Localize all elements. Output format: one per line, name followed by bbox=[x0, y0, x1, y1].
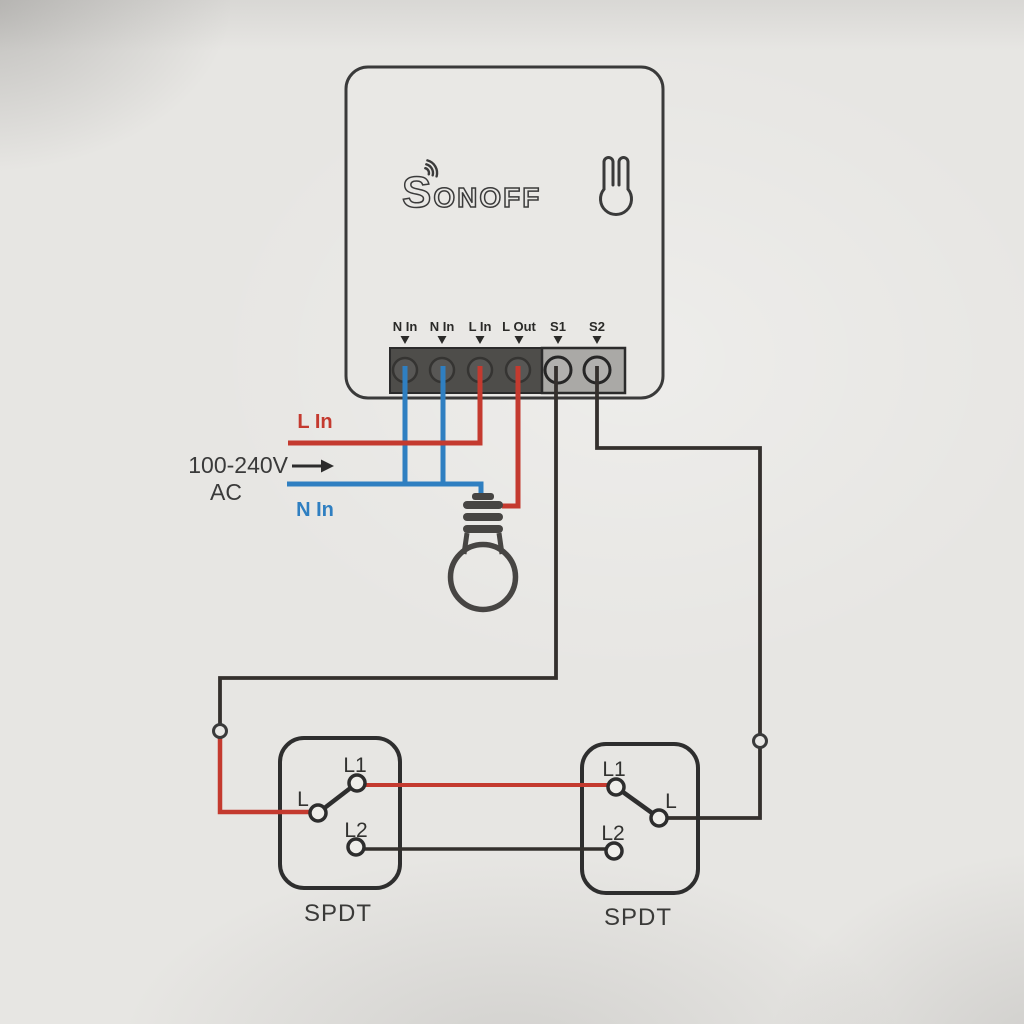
label-l-out: L Out bbox=[502, 319, 536, 334]
label-n-in-2: N In bbox=[430, 319, 455, 334]
s1-wire bbox=[220, 366, 556, 733]
switch-terminal-contacts bbox=[310, 775, 667, 859]
wiring-diagram: SONOFF N In N In L In L Out S1 S2 bbox=[0, 0, 1024, 1024]
label-l-in: L In bbox=[469, 319, 492, 334]
left-l1-contact bbox=[349, 775, 365, 791]
s2-wire bbox=[597, 366, 760, 818]
right-l-label: L bbox=[665, 790, 677, 813]
brand-rest: ONOFF bbox=[433, 182, 541, 213]
terminal-block bbox=[390, 348, 625, 393]
left-spdt-label: SPDT bbox=[304, 900, 372, 927]
right-l2-contact bbox=[606, 843, 622, 859]
label-s1: S1 bbox=[550, 319, 566, 334]
label-s2: S2 bbox=[589, 319, 605, 334]
power-source-labels: L In 100-240V AC N In bbox=[188, 411, 334, 521]
right-l2-label: L2 bbox=[601, 822, 624, 845]
live-in-label: L In bbox=[297, 411, 332, 433]
left-l-label: L bbox=[297, 788, 309, 811]
right-arrow-icon bbox=[292, 460, 334, 473]
screw-s1 bbox=[545, 357, 571, 383]
left-l2-label: L2 bbox=[344, 819, 367, 842]
right-spdt-label: SPDT bbox=[604, 904, 672, 931]
light-bulb-icon bbox=[451, 493, 516, 610]
ac-label: AC bbox=[210, 479, 242, 505]
brand-letter-s: S bbox=[402, 168, 431, 217]
voltage-label: 100-240V bbox=[188, 452, 288, 478]
junction-connector-left bbox=[214, 725, 227, 738]
left-l1-label: L1 bbox=[343, 754, 366, 777]
junction-connector-right bbox=[754, 735, 767, 748]
neutral-in-label: N In bbox=[296, 499, 334, 521]
left-l-contact bbox=[310, 805, 326, 821]
right-l1-label: L1 bbox=[602, 758, 625, 781]
label-n-in-1: N In bbox=[393, 319, 418, 334]
right-l1-contact bbox=[608, 779, 624, 795]
